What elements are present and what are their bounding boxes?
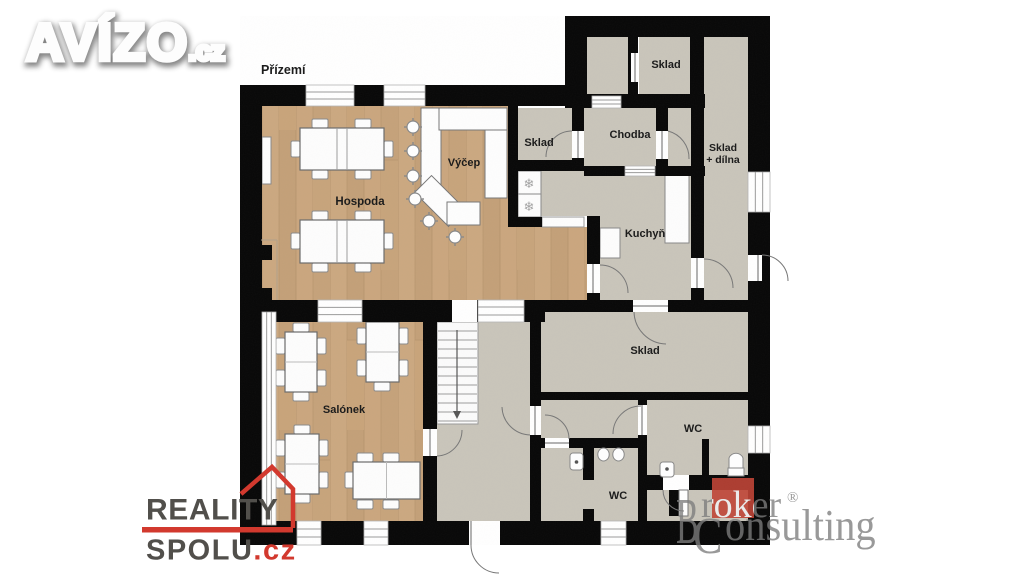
svg-text:Hospoda: Hospoda xyxy=(335,196,385,208)
svg-text:Sklad: Sklad xyxy=(630,345,659,357)
svg-text:WC: WC xyxy=(609,490,627,502)
svg-text:Sklad: Sklad xyxy=(651,59,680,71)
svg-text:REALITY: REALITY xyxy=(146,494,279,527)
svg-text:Výčep: Výčep xyxy=(448,157,481,169)
svg-text:Chodba: Chodba xyxy=(610,129,652,141)
svg-text:Přízemí: Přízemí xyxy=(261,63,306,77)
svg-text:WC: WC xyxy=(684,423,702,435)
svg-text:+ dílna: + dílna xyxy=(706,154,740,166)
svg-text:Sklad: Sklad xyxy=(709,142,737,154)
svg-text:Salónek: Salónek xyxy=(323,404,366,416)
svg-text:Kuchyň: Kuchyň xyxy=(625,228,666,240)
svg-text:Sklad: Sklad xyxy=(524,137,553,149)
svg-text:SPOLU.cz: SPOLU.cz xyxy=(146,535,297,567)
